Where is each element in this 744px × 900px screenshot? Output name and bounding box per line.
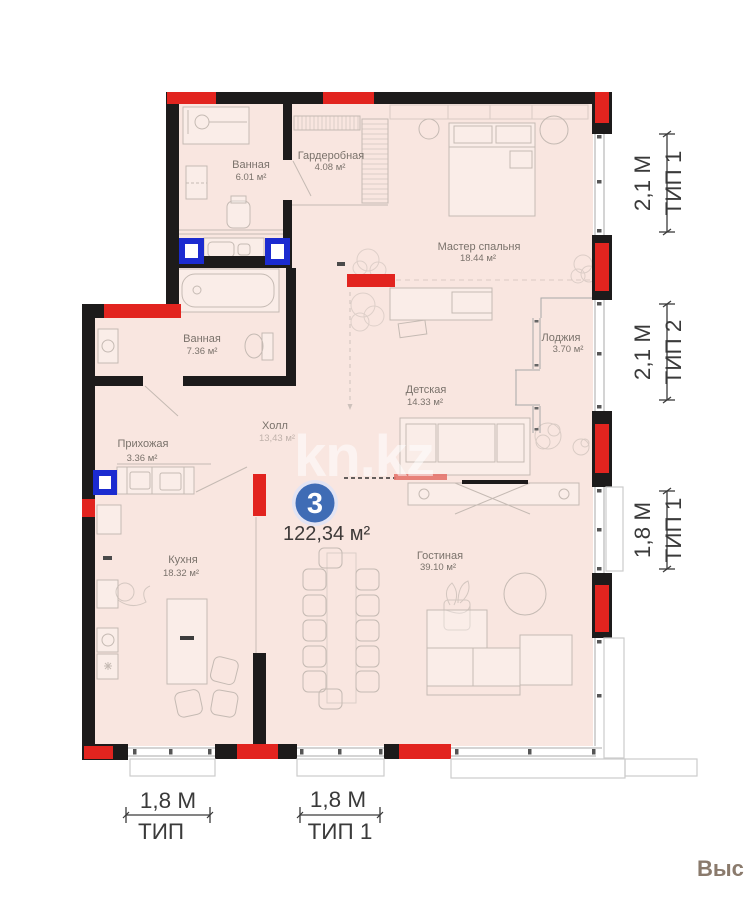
svg-text:Гардеробная: Гардеробная	[298, 150, 365, 162]
svg-text:ТИП 1: ТИП 1	[661, 498, 686, 563]
svg-text:7.36 м²: 7.36 м²	[187, 346, 218, 357]
svg-text:ТИП: ТИП	[138, 819, 184, 844]
svg-text:Гостиная: Гостиная	[417, 550, 463, 562]
svg-text:Лоджия: Лоджия	[542, 332, 581, 344]
svg-text:Кухня: Кухня	[168, 554, 197, 566]
svg-text:1,8 М: 1,8 М	[630, 502, 655, 558]
svg-text:3.36 м²: 3.36 м²	[127, 453, 158, 464]
svg-text:14.33 м²: 14.33 м²	[407, 397, 443, 408]
svg-text:1,8 М: 1,8 М	[310, 787, 366, 812]
svg-text:Мастер спальня: Мастер спальня	[438, 241, 521, 253]
svg-text:ТИП 1: ТИП 1	[308, 819, 373, 844]
svg-text:3.70 м²: 3.70 м²	[553, 344, 584, 355]
svg-text:2,1 М: 2,1 М	[630, 324, 655, 380]
svg-text:Ванная: Ванная	[183, 333, 221, 345]
svg-text:6.01 м²: 6.01 м²	[236, 172, 267, 183]
svg-text:Детская: Детская	[406, 384, 447, 396]
svg-text:2,1 М: 2,1 М	[630, 155, 655, 211]
svg-text:122,34 м²: 122,34 м²	[283, 523, 370, 545]
svg-text:1,8 М: 1,8 М	[140, 788, 196, 813]
svg-text:39.10 м²: 39.10 м²	[420, 562, 456, 573]
svg-text:18.44 м²: 18.44 м²	[460, 253, 496, 264]
svg-text:4.08 м²: 4.08 м²	[315, 162, 346, 173]
svg-text:Ванная: Ванная	[232, 159, 270, 171]
svg-text:ТИП 1: ТИП 1	[661, 151, 686, 216]
svg-text:13,43 м²: 13,43 м²	[259, 433, 295, 444]
svg-text:Выс: Выс	[697, 856, 744, 881]
svg-text:18.32 м²: 18.32 м²	[163, 568, 199, 579]
svg-text:kn.kz: kn.kz	[294, 424, 434, 489]
svg-text:Холл: Холл	[262, 420, 288, 432]
svg-text:Прихожая: Прихожая	[118, 438, 169, 450]
svg-text:ТИП 2: ТИП 2	[661, 320, 686, 385]
svg-text:3: 3	[307, 488, 323, 520]
